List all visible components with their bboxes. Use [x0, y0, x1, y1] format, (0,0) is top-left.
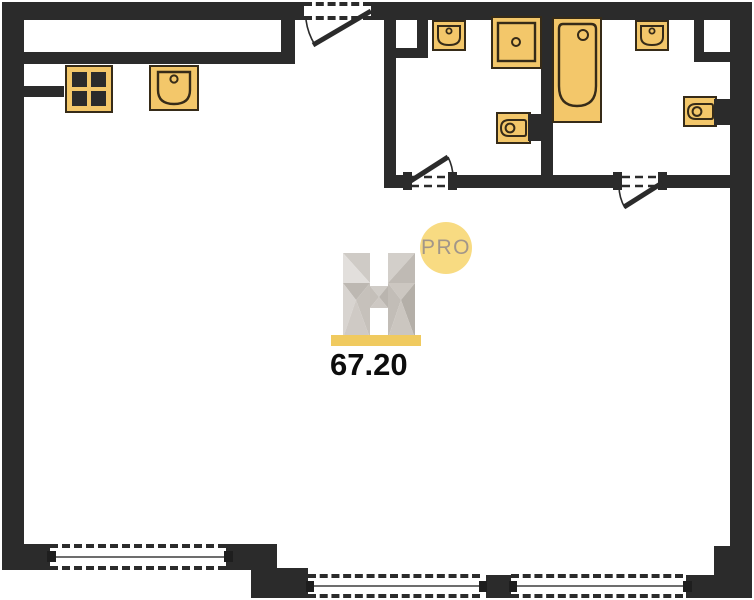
bathroom1-door-swing-icon [409, 157, 453, 186]
pro-badge: PRO [420, 222, 472, 274]
wall-window-mullion [486, 575, 511, 598]
wall-niche-closure [281, 20, 295, 52]
wall-kitchen-stub [24, 86, 64, 97]
entrance-opening [304, 2, 371, 20]
wall-bathroom-bottom-c [667, 175, 730, 188]
kitchen-sink-icon [150, 66, 198, 110]
wall-step-upper [226, 544, 277, 570]
wall-bathroom-divider [541, 20, 553, 175]
window-cap [683, 581, 692, 592]
wall-bathroom-bottom-b [454, 175, 616, 188]
wall-duct2-left [694, 20, 704, 53]
logo-letter-h [343, 253, 415, 338]
wall-kitchen-niche-bar [24, 52, 295, 64]
wall-left [2, 2, 24, 570]
area-label: 67.20 [330, 347, 460, 383]
window-bottom-middle [308, 574, 480, 598]
toilet-icon [684, 97, 730, 126]
wall-step-lower [251, 568, 308, 598]
bathroom2-door-swing-icon [619, 177, 662, 208]
window-cap [509, 581, 517, 592]
door-post [658, 172, 667, 190]
logo-underline-bar [331, 335, 421, 346]
wall-top-left [2, 2, 304, 20]
wall-top-right [371, 2, 752, 20]
wall-right-step [714, 546, 752, 577]
plan-symbols-layer [0, 0, 754, 600]
floor-plan: PRO 67.20 [0, 0, 754, 600]
window-cap [479, 581, 487, 592]
toilet-icon [497, 113, 542, 143]
window-bottom-left [50, 544, 226, 570]
wall-right [730, 2, 752, 548]
bathroom-sink-icon [636, 21, 668, 50]
wall-bathroom-left [384, 20, 396, 188]
window-cap [224, 551, 233, 562]
shower-tray-icon [492, 17, 541, 68]
window-cap [47, 551, 56, 562]
door-post [448, 172, 457, 190]
wall-duct1-bottom [395, 48, 428, 58]
bathtub-icon [553, 18, 601, 122]
pro-badge-label: PRO [421, 236, 471, 260]
window-bottom-right [511, 574, 683, 598]
window-cap [306, 581, 314, 592]
bathroom-sink-icon [433, 21, 465, 50]
stove-icon [66, 66, 112, 112]
window-glass-line [50, 556, 226, 558]
window-glass-line [308, 585, 480, 587]
wall-corner-bottom-right [686, 575, 752, 598]
door-post [613, 172, 622, 190]
door-post [403, 172, 412, 190]
wall-duct2-bottom [694, 52, 730, 62]
window-glass-line [511, 585, 683, 587]
